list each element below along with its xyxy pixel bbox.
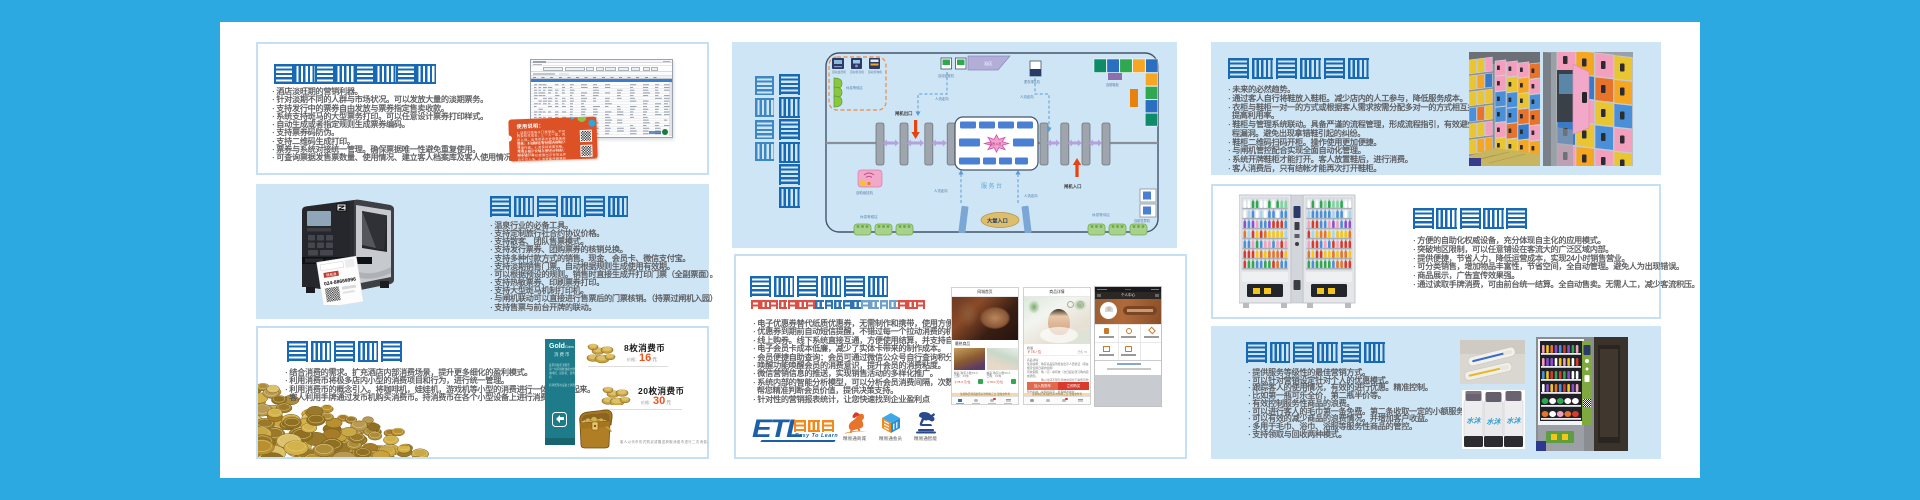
svg-text:水沐: 水沐: [1507, 416, 1522, 425]
svg-text:闸机入口: 闸机入口: [1064, 183, 1082, 190]
svg-text:自助售票机: 自助售票机: [1134, 218, 1151, 223]
svg-text:自动结账机: 自动结账机: [938, 73, 955, 78]
svg-text:人流走向: 人流走向: [1024, 193, 1038, 198]
svg-text:浴区: 浴区: [984, 60, 992, 67]
svg-text:休息等候区: 休息等候区: [846, 85, 864, 90]
svg-text:自助续挂机: 自助续挂机: [856, 190, 874, 195]
svg-text:服务人员: 服务人员: [990, 142, 1001, 146]
svg-text:自动会员机: 自动会员机: [832, 70, 846, 74]
svg-text:大堂入口: 大堂入口: [987, 217, 1008, 225]
svg-text:人流走向: 人流走向: [1020, 94, 1034, 99]
svg-text:服务台: 服务台: [981, 182, 1004, 190]
svg-text:更衣排队机: 更衣排队机: [1024, 79, 1041, 84]
svg-text:闸机出口: 闸机出口: [895, 110, 913, 117]
svg-text:人流走向: 人流走向: [935, 96, 949, 101]
svg-text:人流走向: 人流走向: [934, 188, 948, 193]
svg-text:自助鞋柜: 自助鞋柜: [1106, 82, 1120, 87]
svg-text:水沐: 水沐: [1487, 417, 1502, 426]
svg-text:水沐: 水沐: [1467, 416, 1482, 425]
svg-text:自动售票机: 自动售票机: [850, 70, 864, 74]
svg-text:休息等候区: 休息等候区: [860, 214, 878, 219]
svg-text:自动查询机: 自动查询机: [868, 70, 882, 74]
svg-text:休息等待区: 休息等待区: [1092, 212, 1110, 217]
